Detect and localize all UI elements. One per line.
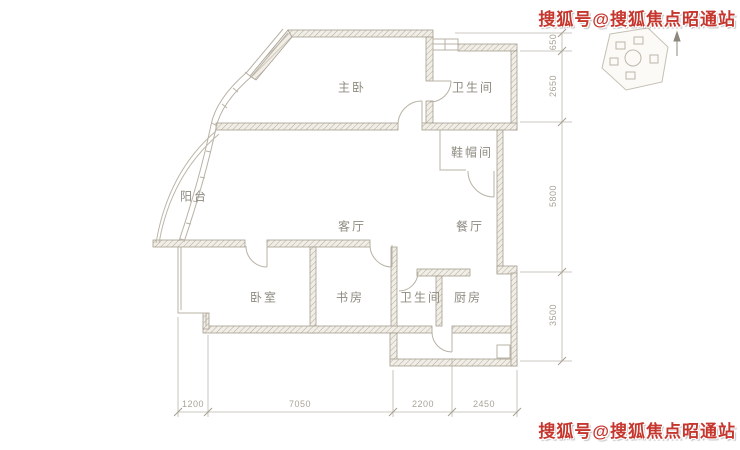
doors [246, 81, 494, 352]
bedroom-door-arc [246, 246, 267, 267]
dim-bottom-2450: 2450 [473, 399, 495, 409]
entry-door-arc [468, 171, 494, 197]
room-label-cloakroom: 鞋帽间 [451, 144, 493, 161]
floorplan-drawing [0, 0, 740, 450]
dim-right-3500: 3500 [548, 304, 558, 326]
bathroom-top-door-arc [430, 81, 451, 102]
window-ticks [180, 72, 250, 240]
room-label-balcony: 阳台 [180, 188, 208, 205]
dim-bottom-1200: 1200 [182, 399, 204, 409]
dim-bottom-2200: 2200 [412, 399, 434, 409]
dim-bottom-7050: 7050 [289, 399, 311, 409]
study-door-arc [370, 245, 392, 267]
site-minimap [602, 28, 680, 90]
dim-right-650: 650 [548, 34, 558, 51]
room-label-living-room: 客厅 [338, 218, 366, 235]
room-label-kitchen: 厨房 [454, 289, 482, 306]
room-label-bathroom-bottom: 卫生间 [400, 289, 442, 306]
watermark-bottom: 搜狐号@搜狐焦点昭通站 [538, 417, 736, 442]
floorplan-screenshot: 主卧 卫生间 鞋帽间 阳台 客厅 餐厅 卧室 书房 卫生间 厨房 650 265… [0, 0, 740, 450]
balcony-door-arc [432, 332, 452, 352]
north-arrow-icon [674, 32, 680, 56]
room-label-bedroom: 卧室 [250, 289, 278, 306]
room-label-study: 书房 [336, 289, 364, 306]
dim-right-2650: 2650 [548, 75, 558, 97]
room-label-master-bedroom: 主卧 [338, 79, 366, 96]
dim-right-5800: 5800 [548, 185, 558, 207]
room-label-bathroom-top: 卫生间 [452, 79, 494, 96]
master-door-arc [398, 101, 422, 125]
room-label-dining-room: 餐厅 [456, 218, 484, 235]
watermark-top: 搜狐号@搜狐焦点昭通站 [538, 5, 736, 30]
